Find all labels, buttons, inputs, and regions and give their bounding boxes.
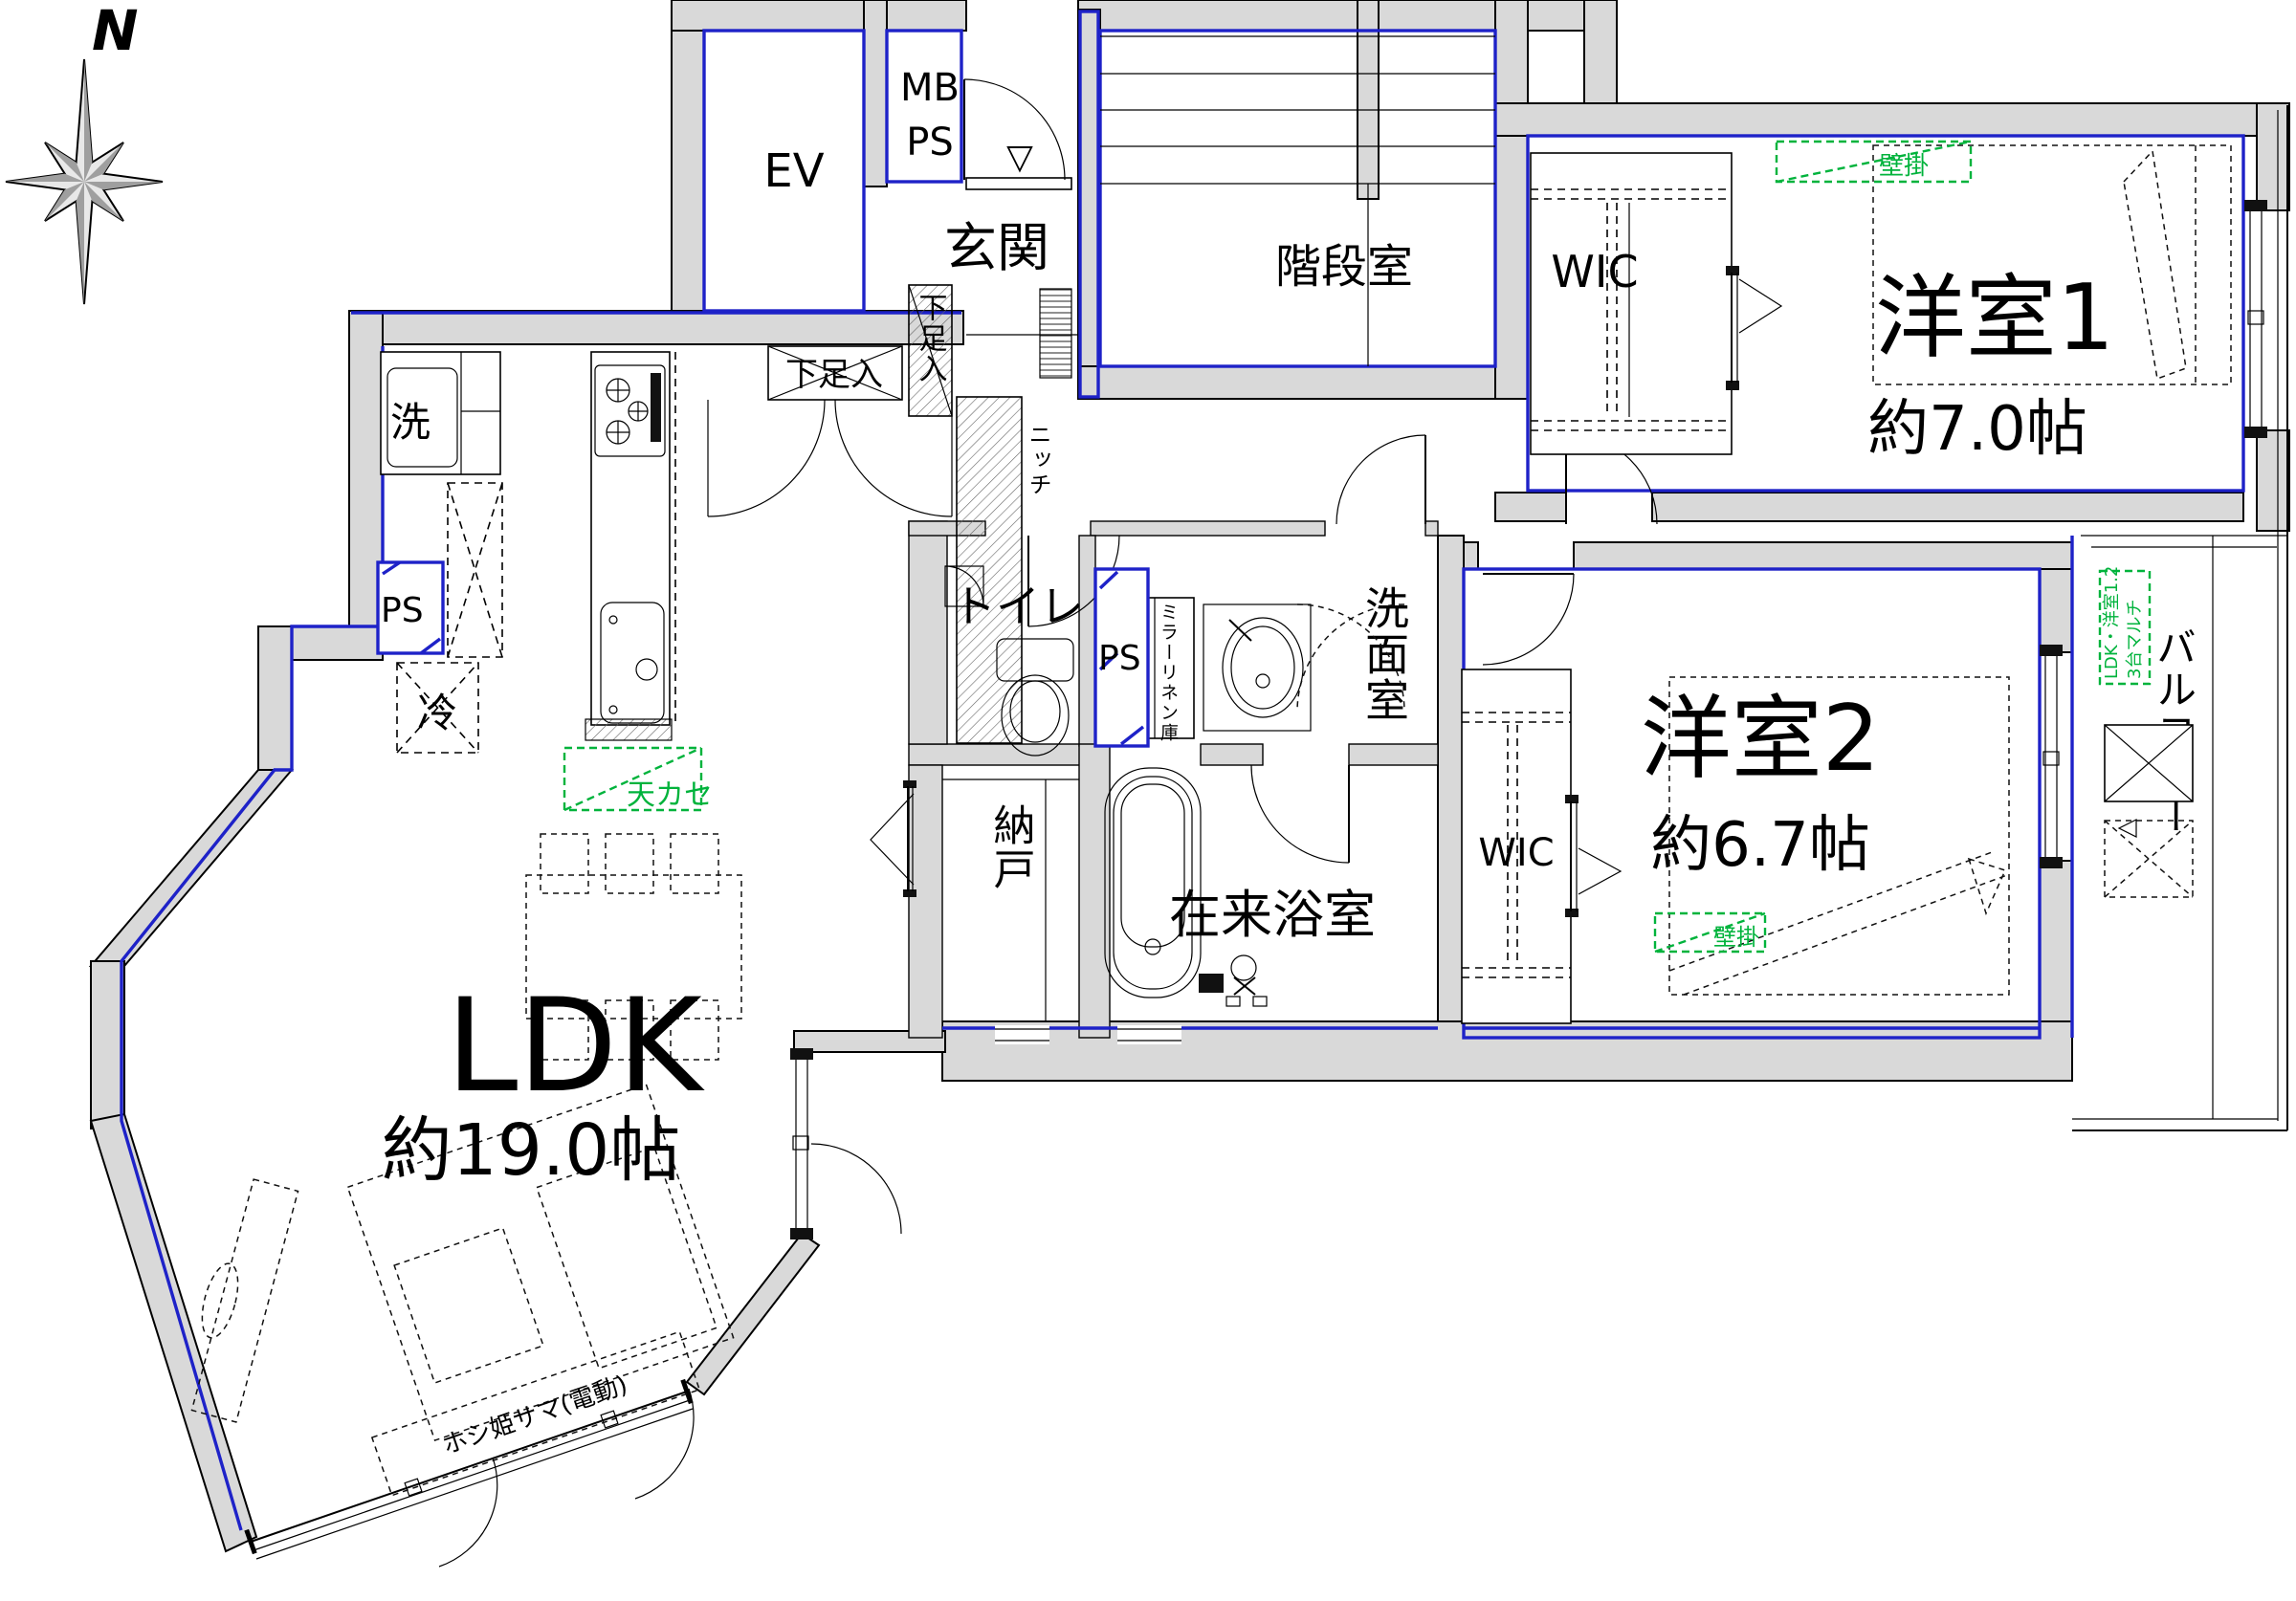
south-window-bath bbox=[1117, 1025, 1181, 1044]
bedroom2-ac-label: 壁掛 bbox=[1713, 924, 1759, 951]
washer-label: 洗 bbox=[390, 399, 430, 446]
ev-label: EV bbox=[763, 144, 824, 198]
shoe-cabinet-v-label: 下足入 bbox=[914, 293, 947, 384]
bedroom1-label: 洋室1 bbox=[1875, 266, 2114, 371]
fridge-label: 冷 bbox=[417, 690, 457, 736]
floor-plan: N bbox=[0, 0, 2296, 1601]
ps-left-label: PS bbox=[381, 591, 424, 630]
storage-label: 納戸 bbox=[986, 803, 1035, 891]
bedroom2-size: 約6.7帖 bbox=[1650, 810, 1870, 881]
multi-ac-line2: 3台マルチ bbox=[2125, 600, 2145, 679]
floor-plan-canvas: N bbox=[0, 0, 2296, 1601]
wic1-label: WIC bbox=[1551, 246, 1638, 297]
ac-outdoor-unit-planned bbox=[2105, 820, 2193, 897]
south-window-storage bbox=[995, 1025, 1049, 1044]
washroom-label: 洗面室 bbox=[1358, 585, 1410, 723]
bathroom-door bbox=[1251, 765, 1349, 863]
bedroom1-ac-label: 壁掛 bbox=[1879, 152, 1929, 181]
ldk-ac-label: 天カセ bbox=[627, 779, 713, 812]
multi-ac-line1: LDK・洋室1.2 bbox=[2102, 566, 2122, 679]
wic2-label: WIC bbox=[1478, 831, 1554, 875]
compass-north-label: N bbox=[92, 0, 139, 63]
compass-rose-icon bbox=[6, 59, 163, 304]
mbps-label-line2: PS bbox=[906, 121, 954, 164]
bathtub bbox=[1105, 768, 1201, 998]
bedroom1-size: 約7.0帖 bbox=[1867, 394, 2087, 465]
ps-mid-label: PS bbox=[1098, 639, 1141, 678]
stairwell-treads bbox=[1100, 36, 1495, 366]
washroom-door bbox=[1336, 435, 1425, 524]
shoe-cabinet-door-arcs bbox=[708, 400, 952, 516]
ldk-size: 約19.0帖 bbox=[382, 1109, 681, 1192]
bath-faucet bbox=[1199, 955, 1267, 1006]
genkan-label: 玄関 bbox=[944, 217, 1049, 278]
entrance-direction-icon: ▽ bbox=[1006, 138, 1033, 177]
niche-wall bbox=[957, 397, 1022, 743]
bedroom2-window bbox=[2040, 645, 2063, 868]
stairwell-label: 階段室 bbox=[1275, 240, 1413, 294]
ac-outdoor-unit bbox=[2105, 725, 2193, 801]
wall-accent-lines bbox=[121, 11, 2243, 1530]
kitchen-counter bbox=[585, 352, 675, 740]
niche-label: ニッチ bbox=[1025, 423, 1051, 497]
mirror-linen-label: ミラーリネン庫 bbox=[1158, 603, 1179, 743]
bedroom2-door bbox=[1483, 574, 1574, 665]
ldk-side-window-door bbox=[790, 1048, 901, 1239]
entrance-mat bbox=[1040, 289, 1071, 378]
bedroom1-window bbox=[2244, 200, 2267, 438]
mbps-label-line1: MB bbox=[900, 66, 960, 110]
wic1-closet bbox=[1531, 153, 1781, 454]
laundry-pole-label: ホシ姫サマ(電動) bbox=[439, 1371, 631, 1460]
walls bbox=[91, 0, 2289, 1551]
ldk-label: LDK bbox=[446, 971, 705, 1121]
bedroom2-label: 洋室2 bbox=[1641, 687, 1880, 792]
shoe-cabinet-h-label: 下足入 bbox=[785, 356, 883, 394]
cupboard-space bbox=[448, 483, 502, 657]
ldk-diagonal-window-wall bbox=[247, 1380, 694, 1567]
